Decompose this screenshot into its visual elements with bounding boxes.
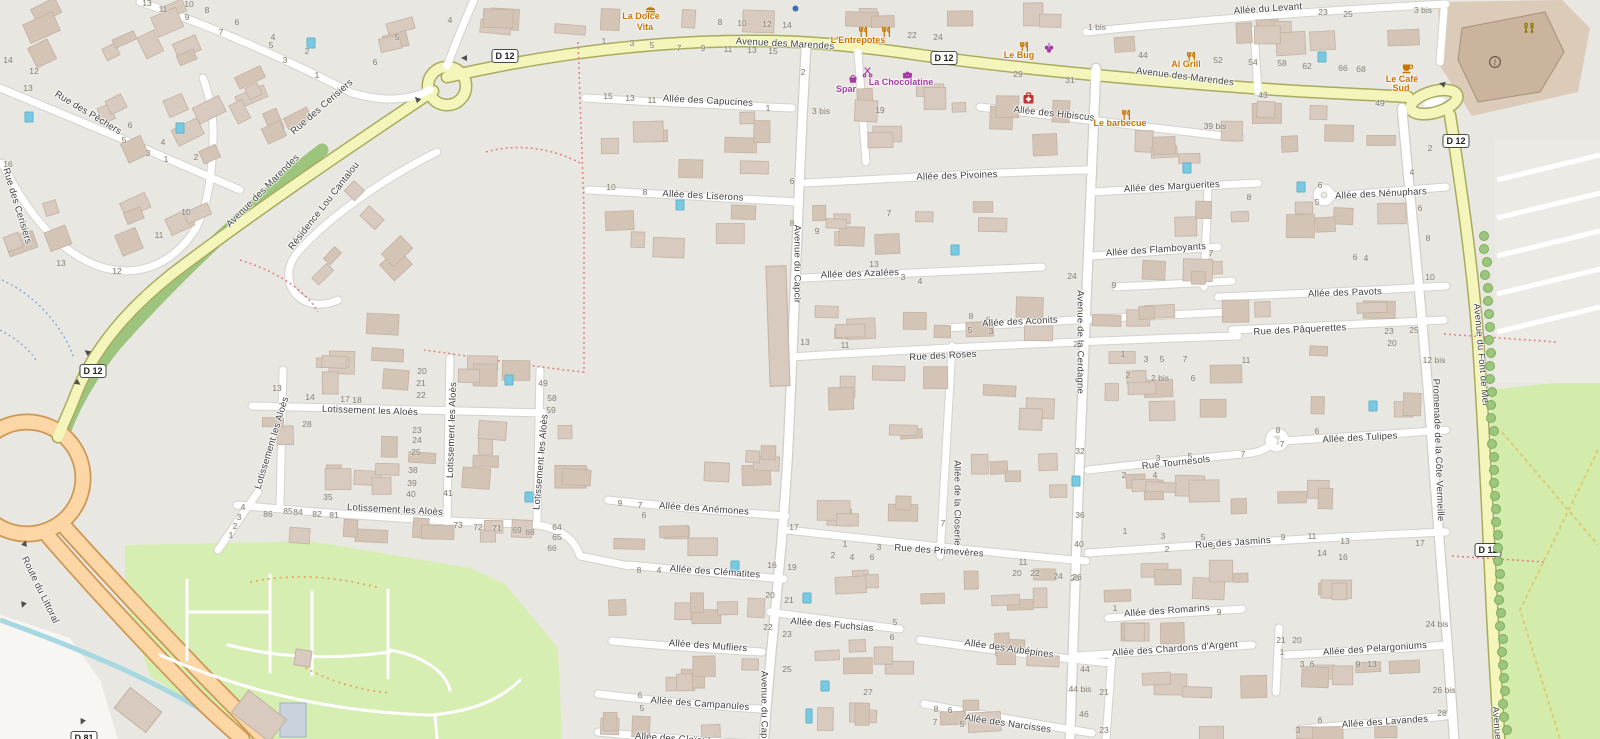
house-number: 1 [1113, 603, 1118, 613]
tree-icon [1479, 231, 1489, 241]
tree-icon [1496, 608, 1506, 618]
house-number: 22 [763, 622, 772, 632]
house-number: 12 [29, 66, 38, 76]
house-number: 24 [1067, 271, 1076, 281]
house-number: 11 [1019, 557, 1028, 567]
house-number: 7 [933, 717, 938, 727]
house-number: 41 [443, 488, 452, 498]
house-number: 15 [603, 91, 612, 101]
poi-label: L'Entrepotes [831, 35, 886, 45]
tree-icon [1494, 582, 1504, 592]
house-number: 6 [890, 632, 895, 642]
poi-label: Le Bug [1004, 50, 1035, 60]
house-number: 20 [417, 366, 426, 376]
tree-icon [1490, 491, 1500, 501]
house-number: 8 [934, 704, 939, 714]
map-graphics [0, 0, 1600, 739]
house-number: 1 [164, 154, 169, 164]
house-number: 23 [1318, 7, 1327, 17]
poi-label: Sud [1393, 83, 1410, 93]
house-number: 10 [181, 207, 190, 217]
house-number: 6 [1315, 426, 1320, 436]
house-number: 29 [1013, 69, 1022, 79]
tree-icon [1502, 725, 1512, 735]
map-canvas[interactable]: i i 81012142224293144525458626668434939 … [0, 0, 1600, 739]
house-number: 23 [412, 425, 421, 435]
tree-icon [1484, 309, 1494, 319]
tree-icon [1495, 569, 1505, 579]
house-number: 21 [1276, 635, 1285, 645]
house-number: 6 [1418, 203, 1423, 213]
house-number: 8 [718, 17, 723, 27]
tree-icon [1489, 452, 1499, 462]
house-number: 7 [638, 500, 643, 510]
house-number: 13 [142, 0, 151, 8]
house-number: 8 [637, 565, 642, 575]
house-number: 4 [657, 565, 662, 575]
house-number: 58 [547, 393, 556, 403]
house-number: 28 [1437, 708, 1446, 718]
house-number: 24 bis [1426, 619, 1449, 629]
house-number: 14 [305, 392, 314, 402]
house-number: 10 [1425, 272, 1434, 282]
house-number: 38 [408, 465, 417, 475]
poi-label: La Chocolatine [869, 77, 934, 87]
house-number: 6 [1353, 252, 1358, 262]
house-number: 11 [1308, 531, 1317, 541]
house-number: 4 [1364, 253, 1369, 263]
house-number: 81 [329, 510, 338, 520]
house-number: 13 [1367, 659, 1376, 669]
tree-icon [1495, 621, 1505, 631]
tree-icon [1491, 517, 1501, 527]
house-number: 8 [1247, 192, 1252, 202]
tree-icon [1489, 465, 1499, 475]
house-number: 6 [1191, 373, 1196, 383]
house-number: 6 [1310, 659, 1315, 669]
house-number: 1 [229, 530, 234, 540]
house-number: 18 [352, 395, 361, 405]
tree-icon [1497, 647, 1507, 657]
house-number: 44 [1138, 50, 1147, 60]
house-number: 11 [159, 4, 168, 14]
house-number: 9 [815, 226, 820, 236]
house-number: 1 [315, 70, 320, 80]
house-number: 11 [1242, 355, 1251, 365]
house-number: 4 [850, 552, 855, 562]
house-number: 5 [893, 617, 898, 627]
house-number: 36 [1075, 510, 1084, 520]
house-number: 19 [875, 105, 884, 115]
swimming-pool [1072, 476, 1081, 487]
tree-icon [1489, 426, 1499, 436]
house-number: 66 [547, 543, 556, 553]
house-number: 7 [1280, 439, 1285, 449]
house-number: 12 bis [1423, 355, 1446, 365]
tree-icon [1485, 322, 1495, 332]
house-number: 7 [219, 27, 224, 37]
house-number: 85 [283, 506, 292, 516]
tree-icon [1498, 660, 1508, 670]
house-number: 9 [1217, 607, 1222, 617]
tree-icon [1486, 348, 1496, 358]
house-number: 6 [642, 510, 647, 520]
house-number: 16 [1338, 552, 1347, 562]
house-number: 4 [918, 276, 923, 286]
house-number: 52 [1213, 55, 1222, 65]
house-number: 8 [205, 5, 210, 15]
house-number: 2 [1126, 370, 1131, 380]
house-number: 68 [1356, 64, 1365, 74]
house-number: 13 [23, 83, 32, 93]
house-number: 3 [283, 55, 288, 65]
house-number: 8 [643, 187, 648, 197]
poi-label: La Dolce [622, 11, 660, 21]
house-number: 84 [293, 507, 302, 517]
house-number: 8 [969, 311, 974, 321]
swimming-pool [803, 593, 812, 604]
house-number: 11 [155, 230, 164, 240]
house-number: 1 bis [1088, 22, 1106, 32]
tree-icon [1483, 296, 1493, 306]
road-ref-badge: D 12 [79, 364, 106, 378]
house-number: 65 [552, 532, 561, 542]
house-number: 49 [1375, 98, 1384, 108]
house-number: 21 [416, 378, 425, 388]
house-number: 1 [1121, 349, 1126, 359]
house-number: 31 [1065, 75, 1074, 85]
house-number: 12 [762, 19, 771, 29]
swimming-pool [1369, 401, 1378, 412]
house-number: 3 [1144, 354, 1149, 364]
tree-icon [1493, 530, 1503, 540]
tree-icon [1491, 504, 1501, 514]
house-number: 40 [1074, 539, 1083, 549]
house-number: 22 [416, 390, 425, 400]
house-number: 7 [1183, 354, 1188, 364]
house-number: 6 [1318, 715, 1323, 725]
house-number: 68 [525, 527, 534, 537]
house-number: 21 [784, 595, 793, 605]
house-number: 5 [640, 703, 645, 713]
house-number: 6 [638, 690, 643, 700]
house-number: 20 [1012, 568, 1021, 578]
house-number: 6 [373, 57, 378, 67]
house-number: 9 [701, 43, 706, 53]
street-label: Allée de la Closerie [952, 460, 963, 546]
house-number: 1 [843, 539, 848, 549]
house-number: 9 [185, 12, 190, 22]
tree-icon [1498, 634, 1508, 644]
house-number: 17 [1415, 538, 1424, 548]
house-number: 3 [146, 148, 151, 158]
house-number: 23 [1099, 725, 1108, 735]
tree-icon [1480, 270, 1490, 280]
house-number: 26 bis [1433, 685, 1456, 695]
tree-icon [1484, 335, 1494, 345]
poi-label: Vita [637, 22, 653, 32]
house-number: 44 bis [1069, 684, 1092, 694]
house-number: 4 [161, 137, 166, 147]
house-number: 3 [630, 38, 635, 48]
house-number: 7 [677, 43, 682, 53]
house-number: 4 [448, 15, 453, 25]
house-number: 40 [406, 489, 415, 499]
house-number: 72 [473, 522, 482, 532]
house-number: 11 [724, 44, 733, 54]
oneway-arrow [461, 55, 467, 61]
house-number: 6 [790, 176, 795, 186]
house-number: 22 [1030, 568, 1039, 578]
tree-icon [1483, 283, 1493, 293]
house-number: 13 [625, 93, 634, 103]
house-number: 69 [512, 525, 521, 535]
house-number: 44 [1080, 664, 1089, 674]
house-number: 2 [831, 550, 836, 560]
house-number: 8 [1276, 425, 1281, 435]
house-number: 12 [112, 266, 121, 276]
house-number: 82 [312, 509, 321, 519]
house-number: 3 [1161, 531, 1166, 541]
house-number: 26 [1072, 572, 1081, 582]
house-number: 24 [933, 32, 942, 42]
tree-icon [1500, 686, 1510, 696]
house-number: 7 [1241, 449, 1246, 459]
house-number: 43 [1258, 90, 1267, 100]
house-number: 22 [907, 30, 916, 40]
house-number: 25 [411, 447, 420, 457]
house-number: 25 [1409, 325, 1418, 335]
house-number: 13 [1340, 536, 1349, 546]
house-number: 28 [302, 419, 311, 429]
house-number: 2 [1428, 143, 1433, 153]
house-number: 3 bis [1414, 5, 1432, 15]
house-number: 23 [782, 629, 791, 639]
house-number: 24 [412, 435, 421, 445]
house-number: 4 [1410, 167, 1415, 177]
house-number: 6 [235, 17, 240, 27]
tree-icon [1499, 673, 1509, 683]
house-number: 13 [272, 383, 281, 393]
house-number: 1 [602, 36, 607, 46]
house-number: 14 [3, 55, 12, 65]
house-number: 27 [863, 687, 872, 697]
house-number: 4 [241, 502, 246, 512]
house-number: 39 bis [1204, 121, 1227, 131]
svg-text:i: i [1494, 58, 1497, 68]
house-number: 11 [841, 340, 850, 350]
house-number: 49 [538, 378, 547, 388]
tree-icon [1493, 556, 1503, 566]
house-number: 64 [552, 522, 561, 532]
swimming-pool [505, 375, 514, 386]
house-number: 86 [263, 509, 272, 519]
house-number: 7 [887, 208, 892, 218]
house-number: 46 [1079, 709, 1088, 719]
house-number: 5 [122, 135, 127, 145]
house-number: 58 [1277, 58, 1286, 68]
swimming-pool [951, 245, 960, 256]
tree-icon [1493, 543, 1503, 553]
poi-label: Le barbecue [1093, 118, 1146, 128]
house-number: 3 [1296, 725, 1301, 735]
house-number: 3 [877, 542, 882, 552]
house-number: 9 [1112, 280, 1117, 290]
house-number: 10 [184, 0, 193, 9]
house-number: 6 [870, 552, 875, 562]
house-number: 71 [492, 523, 501, 533]
house-number: 25 [1343, 9, 1352, 19]
house-number: 62 [1302, 61, 1311, 71]
house-number: 21 [1099, 687, 1108, 697]
house-number: 5 [269, 40, 274, 50]
house-number: 5 [968, 325, 973, 335]
house-number: 7 [1209, 248, 1214, 258]
house-number: 3 [1300, 659, 1305, 669]
house-number: 5 [395, 32, 400, 42]
poi-label: Spar [836, 84, 856, 94]
tree-icon [1485, 374, 1495, 384]
street-label: Avenue du Capcir [759, 671, 770, 739]
swimming-pool [676, 200, 685, 211]
house-number: 19 [787, 562, 796, 572]
house-number: 9 [1281, 532, 1286, 542]
poi-label: Al Grill [1171, 59, 1201, 69]
tree-icon [1479, 244, 1489, 254]
house-number: 2 bis [1151, 373, 1169, 383]
house-number: 5 [650, 40, 655, 50]
house-number: 2 [1165, 544, 1170, 554]
swimming-pool [1183, 163, 1192, 174]
house-number: 6 [948, 705, 953, 715]
road-ref-badge: D 12 [491, 49, 518, 63]
house-number: 35 [323, 492, 332, 502]
swimming-pool [176, 123, 185, 134]
house-number: 25 [782, 664, 791, 674]
house-number: 9 [618, 498, 623, 508]
house-number: 23 [1384, 326, 1393, 336]
house-number: 16 [767, 560, 776, 570]
house-number: 17 [789, 522, 798, 532]
street-label: Avenue de la Cerdagne [1075, 290, 1086, 394]
house-number: 8 [1426, 233, 1431, 243]
house-number: 9 [1356, 659, 1361, 669]
tree-icon [1487, 387, 1497, 397]
house-number: 3 [901, 272, 906, 282]
house-number: 20 [765, 590, 774, 600]
house-number: 11 [648, 95, 657, 105]
tree-icon [1486, 413, 1496, 423]
house-number: 14 [782, 20, 791, 30]
house-number: 20 [1387, 338, 1396, 348]
house-number: 6 [128, 120, 133, 130]
tree-icon [1498, 699, 1508, 709]
swimming-pool [821, 681, 830, 692]
house-number: 13 [800, 337, 809, 347]
house-number: 10 [737, 18, 746, 28]
road-ref-badge: D 12 [1442, 134, 1469, 148]
house-number: 73 [453, 520, 462, 530]
house-number: 1 [1123, 526, 1128, 536]
street-label: Avenue du Capcir [792, 225, 803, 304]
house-number: 17 [340, 394, 349, 404]
house-number: 2 [801, 67, 806, 77]
house-number: 6 [1318, 180, 1323, 190]
house-number: 39 [407, 478, 416, 488]
house-number: 54 [1248, 57, 1257, 67]
house-number: 32 [1075, 446, 1084, 456]
tree-icon [1482, 257, 1492, 267]
tree-icon [1486, 400, 1496, 410]
road-ref-badge: D 81 [70, 731, 97, 739]
house-number: 4 [1153, 470, 1158, 480]
swimming-pool [806, 709, 813, 724]
tree-icon [1485, 361, 1495, 371]
house-number: 10 [606, 182, 615, 192]
house-number: 2 [305, 46, 310, 56]
house-number: 13 [56, 258, 65, 268]
swimming-pool [1297, 182, 1306, 193]
house-number: 5 [1315, 197, 1320, 207]
house-number: 2 [1122, 470, 1127, 480]
house-number: 3 bis [812, 106, 830, 116]
house-number: 1 [1280, 647, 1285, 657]
house-number: 20 [1292, 635, 1301, 645]
house-number: 24 [1053, 571, 1062, 581]
swimming-pool [25, 112, 34, 123]
house-number: 7 [941, 518, 946, 528]
house-number: 2 [194, 152, 199, 162]
house-number: 5 [1160, 354, 1165, 364]
tree-icon [1489, 478, 1499, 488]
house-number: 66 [1338, 63, 1347, 73]
house-number: 1 [766, 103, 771, 113]
tree-icon [1494, 595, 1504, 605]
tree-icon [1487, 439, 1497, 449]
swimming-pool [1318, 52, 1327, 63]
road-ref-badge: D 12 [930, 51, 957, 65]
tree-icon [1499, 712, 1509, 722]
house-number: 14 [1317, 548, 1326, 558]
